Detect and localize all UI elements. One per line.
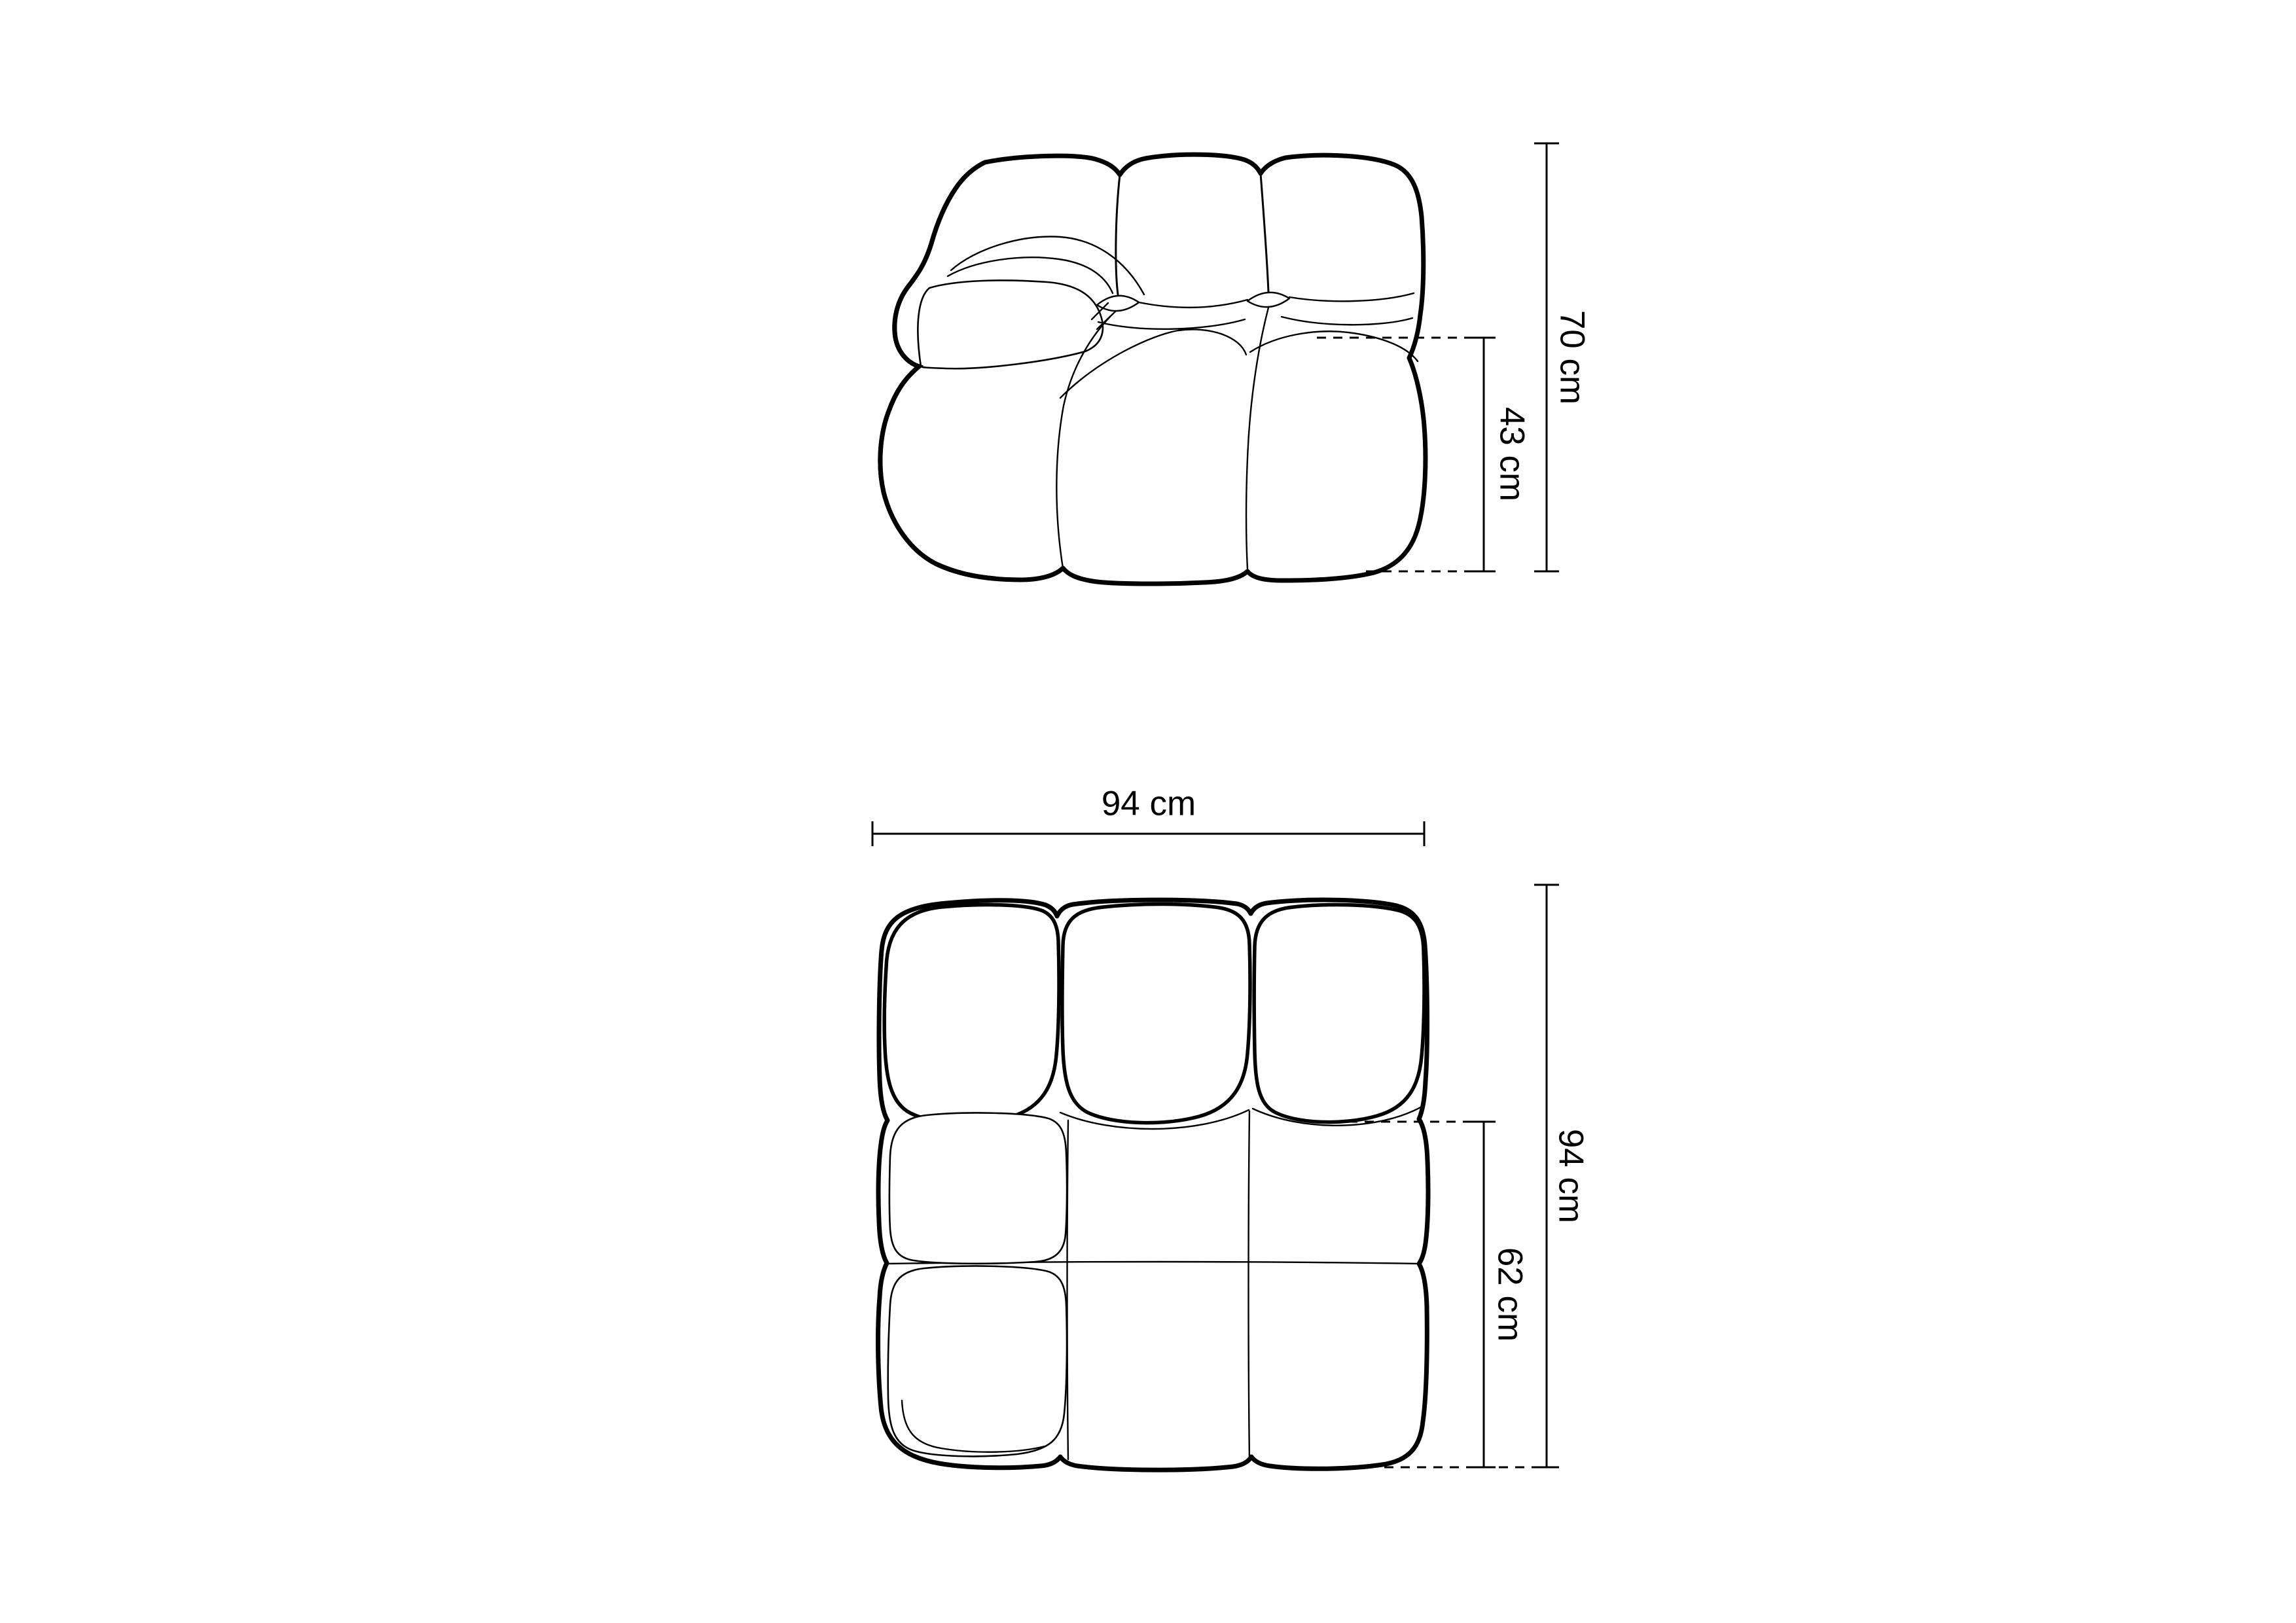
backrest-cushion-right (1254, 905, 1424, 1122)
bottom-left-cushion (888, 1266, 1067, 1457)
side-elevation-drawing (880, 154, 1426, 584)
dim-label-width: 94 cm (1102, 787, 1196, 821)
dim-label-seat-depth: 62 cm (1493, 1247, 1528, 1342)
dim-label-seat-height: 43 cm (1495, 407, 1530, 501)
dim-label-total-depth: 94 cm (1554, 1129, 1588, 1223)
backrest-cushion-middle (1062, 904, 1250, 1123)
middle-left-cushion (889, 1113, 1067, 1264)
dimension-sheet: 70 cm 43 cm 94 cm 94 cm 62 cm (0, 0, 2296, 1623)
dimension-line-width (872, 821, 1424, 846)
top-plan-drawing (878, 900, 1428, 1470)
dim-label-total-height: 70 cm (1555, 310, 1590, 404)
backrest-cushion-left (884, 905, 1059, 1123)
